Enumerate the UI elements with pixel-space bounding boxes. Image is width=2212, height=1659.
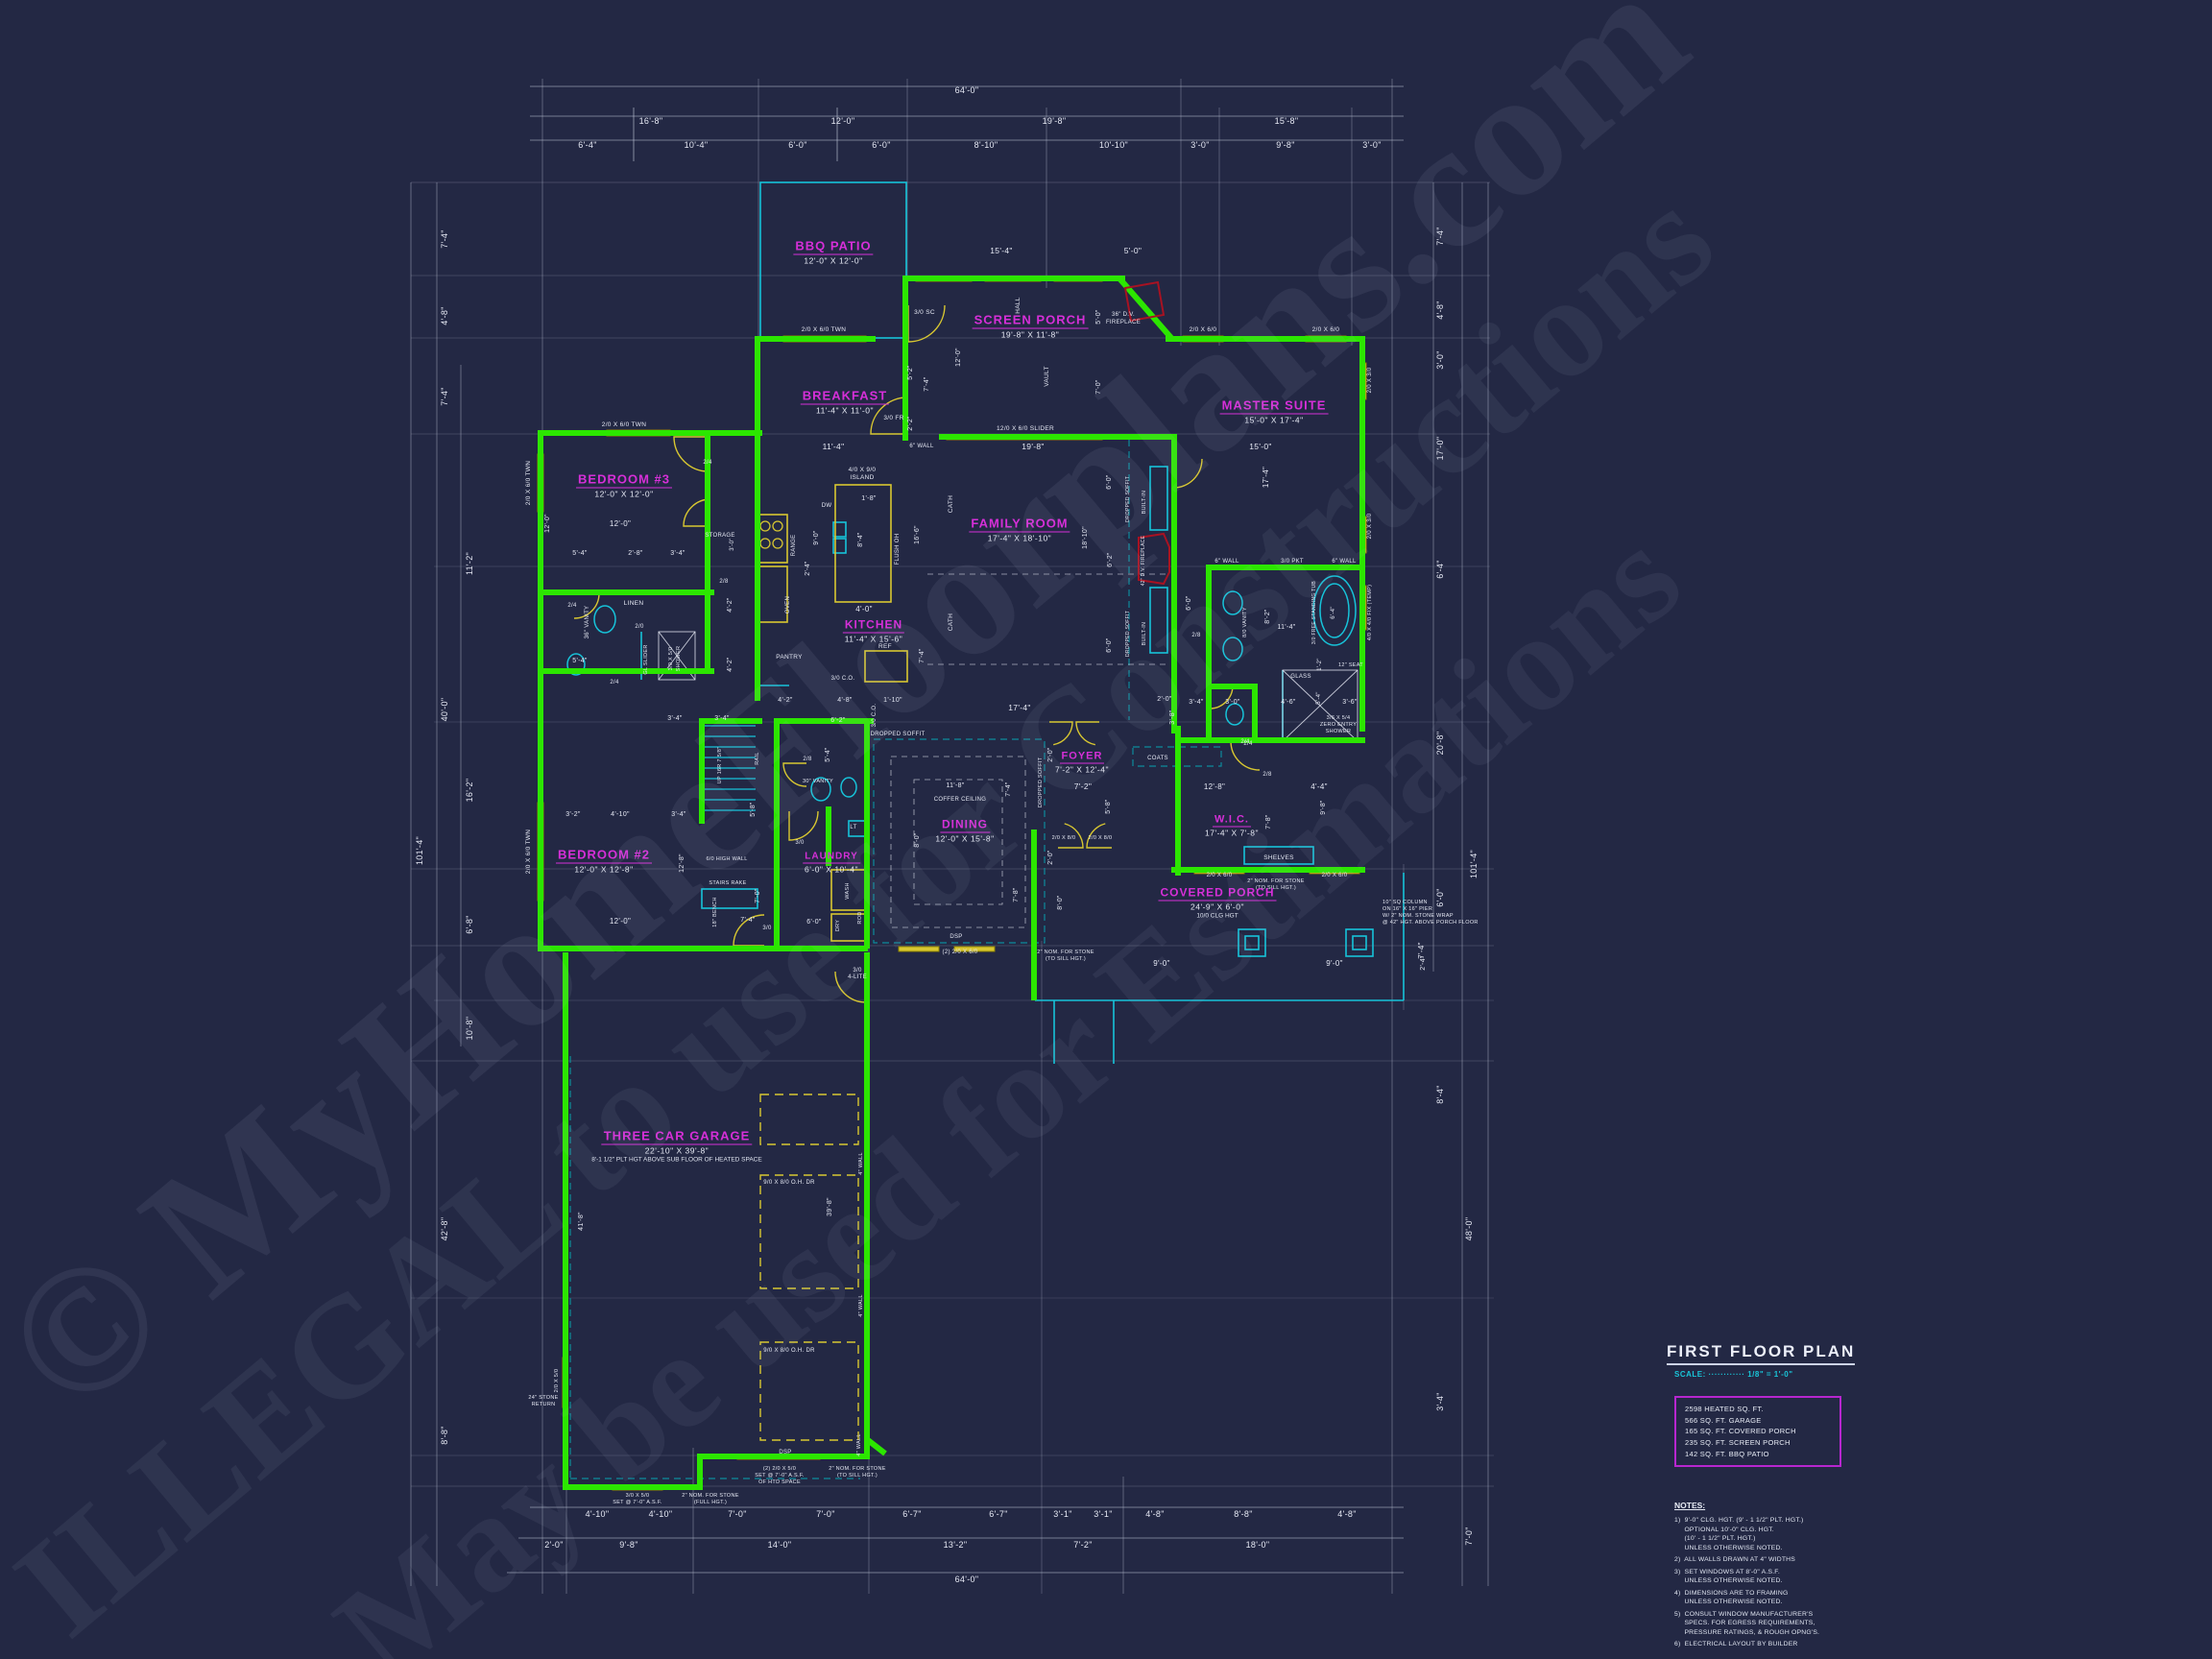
annotation-label: 11'-2" (465, 552, 474, 575)
casework-outline (757, 515, 787, 563)
annotation-label: 7'-0" (1464, 1527, 1474, 1545)
annotation-label: STORAGE (705, 533, 734, 539)
annotation-label: 12" SEAT (1338, 662, 1363, 668)
annotation-label: 6'-7" (989, 1509, 1007, 1519)
annotation-label: 101'-4" (1469, 850, 1479, 878)
annotation-label: 12'-0" (610, 519, 631, 528)
annotation-label: 2'-2" (907, 416, 914, 431)
annotation-label: 3'-4" (714, 715, 730, 722)
annotation-label: 12'-8" (679, 854, 685, 873)
plumbing-fixture (1223, 637, 1242, 661)
wall (705, 523, 710, 670)
annotation-label: 17'-4" (1262, 467, 1270, 488)
annotation-label: 2/0 X 5/0 (554, 1369, 560, 1393)
door-swing (789, 811, 818, 840)
annotation-label: 3'-4" (670, 550, 685, 557)
annotation-label: GL SLIDER (643, 644, 649, 674)
annotation-label: 8'-4" (1435, 1085, 1445, 1103)
overhead-door-track (760, 1342, 858, 1440)
note-item: 1) 9'-0" CLG. HGT. (9' - 1 1/2" PLT. HGT… (1674, 1516, 1868, 1552)
annotation-label: 3'-4" (671, 811, 686, 818)
annotation-label: 4/0 X 9/0 (849, 467, 877, 473)
annotation-label: 4'-2" (727, 657, 733, 672)
annotation-label: 12'-0" (544, 514, 551, 533)
annotation-label: LT (850, 825, 856, 830)
annotation-label: 6'-0" (1106, 474, 1113, 490)
annotation-label: 1'-10" (883, 697, 902, 704)
annotation-label: 7'-4" (1435, 227, 1445, 245)
annotation-label: 5'-8" (750, 802, 757, 817)
annotation-label: 2/0 X 8/0 (1089, 835, 1113, 841)
wall (1206, 565, 1365, 570)
annotation-label: FIREPLACE (1106, 320, 1141, 325)
area-summary-line: 566 SQ. FT. GARAGE (1685, 1415, 1831, 1427)
annotation-label: COATS (1147, 756, 1168, 761)
annotation-label: 20'-8" (1435, 732, 1445, 756)
door-swing (1076, 722, 1099, 745)
annotation-label: 8'-10" (974, 140, 998, 150)
annotation-label: 3'-0" (1225, 699, 1240, 706)
annotation-label: CATH (948, 613, 954, 631)
annotation-label: 4'-8" (440, 306, 449, 325)
range-burner (760, 521, 770, 531)
annotation-label: 5'-2" (907, 365, 914, 380)
annotation-label: 24" STONE (528, 1395, 558, 1401)
annotation-label: 2" NOM. FOR STONE (829, 1466, 886, 1472)
annotation-label: 2'-0" (1047, 747, 1054, 762)
wall-diagonal (868, 1440, 885, 1454)
wall (538, 946, 868, 951)
annotation-label: 8'-0" (1057, 895, 1064, 910)
plumbing-fixture (841, 778, 856, 797)
wall (563, 1484, 703, 1490)
annotation-label: 4'-8" (1337, 1509, 1356, 1519)
annotation-label: 9'-8" (619, 1540, 637, 1550)
annotation-label: 2/4 (567, 603, 577, 609)
annotation-label: RAIL (755, 752, 760, 764)
annotation-label: BUILT-IN (1142, 622, 1147, 646)
annotation-label: 16'-6" (914, 525, 921, 544)
plumbing-fixture (1223, 591, 1242, 614)
wall (1031, 829, 1037, 1000)
fixture-outline (1238, 929, 1265, 956)
annotation-label: RANGE (791, 535, 797, 557)
annotation-label: 2" NOM. FOR STONE (1037, 950, 1094, 955)
annotation-label: 6'-7" (902, 1509, 921, 1519)
annotation-label: 2/0 X 6/0 (1322, 873, 1348, 878)
annotation-label: 2/0 (635, 624, 644, 630)
annotation-label: GLASS (1290, 674, 1311, 680)
annotation-label: DW (822, 503, 832, 509)
annotation-label: 6'-0" (1186, 595, 1192, 611)
fixture-outline (1346, 929, 1373, 956)
annotation-label: 48'-0" (1464, 1217, 1474, 1241)
annotation-label: 10'-4" (685, 140, 709, 150)
wall (1175, 737, 1365, 743)
annotation-label: 5'-0" (1124, 246, 1142, 255)
annotation-label: 42" D.V. FIREPLACE (1141, 535, 1146, 586)
annotation-label: 2/8 (803, 757, 812, 762)
annotation-label: 7'-4" (440, 387, 449, 405)
overhead-door-track (760, 1094, 858, 1144)
annotation-label: 8'-0" (914, 832, 921, 848)
annotation-label: PANTRY (776, 654, 803, 661)
casework-outline (865, 651, 907, 682)
wall (538, 430, 762, 436)
annotation-label: REF (878, 643, 892, 650)
fixture-outline (702, 889, 757, 908)
wall (1359, 336, 1365, 732)
annotation-label: 2/8 (719, 579, 729, 585)
annotation-label: 15'-4" (990, 246, 1012, 255)
annotation-label: DROPPED SOFFIT (1125, 476, 1131, 522)
wall (864, 722, 870, 949)
annotation-label: 3/0 FREE STANDING TUB (1311, 581, 1317, 644)
annotation-label: 3'-8" (1169, 709, 1176, 725)
annotation-label: 18" BENCH (712, 897, 718, 927)
annotation-label: 12'-0" (955, 348, 962, 367)
area-summary-line: 235 SQ. FT. SCREEN PORCH (1685, 1437, 1831, 1449)
annotation-label: BUILT-IN (1142, 491, 1147, 515)
annotation-label: 101'-4" (415, 836, 424, 865)
annotation-label: 4" WALL (858, 1294, 864, 1316)
annotation-label: SHOWER (1326, 729, 1352, 734)
annotation-label: 7'-4" (740, 917, 756, 924)
wall (1206, 565, 1212, 743)
annotation-label: 6" WALL (1214, 559, 1239, 565)
wall (755, 430, 760, 701)
door-swing (1173, 459, 1202, 488)
annotation-label: COFFER CEILING (934, 797, 987, 803)
annotation-label: 8'-2" (1264, 609, 1271, 624)
wall (538, 589, 714, 595)
fixture-outline (760, 182, 906, 338)
annotation-label: DROPPED SOFFIT (871, 732, 926, 737)
annotation-label: 2'-8" (628, 550, 643, 557)
annotation-label: 4'-2" (778, 697, 793, 704)
annotation-label: (FULL HGT.) (694, 1500, 727, 1505)
annotation-label: 7'-8" (1265, 814, 1272, 829)
annotation-label: 3/0 (795, 840, 805, 846)
annotation-label: (2) 2/0 X 6/0 (943, 950, 978, 955)
annotation-label: 18'-10" (1082, 526, 1089, 549)
annotation-label: RETURN (532, 1402, 556, 1407)
annotation-label: LINEN (624, 600, 644, 607)
wall (1171, 434, 1177, 733)
wall (1210, 684, 1258, 689)
wall (538, 430, 543, 951)
annotation-label: 3/0 FR (883, 415, 903, 421)
wall (1166, 336, 1365, 342)
overhead-door-track (760, 1175, 858, 1288)
note-item: 3) SET WINDOWS AT 8'-0" A.S.F. UNLESS OT… (1674, 1568, 1868, 1586)
wall (774, 718, 874, 724)
notes-list: 1) 9'-0" CLG. HGT. (9' - 1 1/2" PLT. HGT… (1674, 1516, 1868, 1649)
annotation-label: @ 42" HGT. ABOVE PORCH FLOOR (1382, 920, 1479, 926)
plumbing-fixture (594, 606, 615, 633)
annotation-label: DSP (779, 1450, 791, 1455)
annotation-label: 10'-8" (465, 1017, 474, 1041)
window (899, 947, 939, 951)
annotation-label: 2/4 (703, 460, 712, 466)
annotation-label: 4-LITE (848, 974, 867, 980)
annotation-label: 5'-4" (1316, 691, 1322, 704)
annotation-label: 2/8 (1262, 772, 1272, 778)
annotation-label: ZERO ENTRY (1320, 722, 1357, 728)
annotation-label: 12/0 X 6/0 SLIDER (997, 425, 1054, 432)
annotation-label: 2'-0" (1157, 696, 1172, 703)
annotation-label: 2" NOM. FOR STONE (1247, 878, 1305, 884)
annotation-label: (TO SILL HGT.) (837, 1473, 878, 1479)
annotation-label: 4" WALL (858, 1152, 864, 1174)
annotation-label: 8/0 VANITY (1242, 607, 1248, 637)
annotation-label: 3'-4" (1189, 699, 1204, 706)
wall (1252, 684, 1258, 743)
annotation-label: 9'-8" (1320, 800, 1327, 815)
annotation-label: 3'-4" (1435, 1392, 1445, 1410)
annotation-label: 3/0 X 5/0 (626, 1493, 650, 1499)
annotation-label: 4'-8" (837, 697, 853, 704)
annotation-label: 12'-8" (1204, 782, 1225, 791)
annotation-label: 10" SQ COLUMN (1382, 900, 1428, 905)
wall (755, 336, 760, 436)
annotation-label: DROPPED SOFFIT (1038, 757, 1044, 807)
area-summary-line: 2598 HEATED SQ. FT. (1685, 1404, 1831, 1415)
annotation-label: 7'-8" (1013, 887, 1020, 902)
annotation-label: 6'-4" (1435, 560, 1445, 578)
annotation-label: DSP (950, 934, 962, 940)
annotation-label: W/ 2" NOM. STONE WRAP (1382, 913, 1454, 919)
wall (774, 718, 780, 950)
annotation-label: 42'-8" (440, 1217, 449, 1241)
annotation-label: 4'-10" (611, 811, 630, 818)
annotation-label: 5'-8" (1105, 799, 1112, 814)
wall (699, 718, 762, 724)
wall (864, 952, 870, 1459)
note-item: 6) ELECTRICAL LAYOUT BY BUILDER (1674, 1640, 1868, 1649)
casework-outline (757, 566, 787, 622)
annotation-label: 17'-4" (1008, 703, 1030, 712)
annotation-label: 7'-0" (728, 1509, 746, 1519)
annotation-label: 6'-2" (830, 717, 846, 724)
annotation-label: 3'-2" (565, 811, 581, 818)
annotation-label: 10'-10" (1099, 140, 1128, 150)
annotation-label: 3'-0" (1190, 140, 1209, 150)
annotation-label: 2/0 X 8/0 (1052, 835, 1076, 841)
annotation-label: 8'-8" (1234, 1509, 1252, 1519)
annotation-label: 6'-4" (578, 140, 596, 150)
annotation-label: ON 16" X 16" PIER (1382, 906, 1432, 912)
annotation-label: 16'-2" (465, 779, 474, 803)
door-swing (1049, 722, 1072, 745)
annotation-label: 9'-0" (813, 530, 820, 545)
note-item: 4) DIMENSIONS ARE TO FRAMING UNLESS OTHE… (1674, 1589, 1868, 1607)
annotation-label: 2/0 X 6/0 TWN (602, 421, 646, 428)
annotation-label: 13'-2" (944, 1540, 968, 1550)
annotation-label: 6'-8" (465, 915, 474, 933)
note-item: 2) ALL WALLS DRAWN AT 4" WIDTHS (1674, 1555, 1868, 1565)
annotation-label: DROPPED SOFFIT (1125, 611, 1131, 657)
annotation-label: SET @ 7'-0" A.S.F. (613, 1500, 662, 1505)
annotation-label: 6'-0" (806, 919, 822, 926)
soffit-dashed-outline (874, 739, 1045, 943)
annotation-label: WASH (845, 882, 851, 900)
annotation-label: 2/4 (1243, 741, 1253, 747)
fixture-outline (1150, 588, 1167, 653)
notes-section: NOTES: 1) 9'-0" CLG. HGT. (9' - 1 1/2" P… (1674, 1496, 1868, 1649)
annotation-label: 3'-1" (1053, 1509, 1071, 1519)
annotation-label: 2/0 X 3/0 (1367, 367, 1373, 393)
wall (538, 668, 714, 674)
annotation-label: 3'-0" (730, 538, 735, 550)
annotation-label: 2" NOM. FOR STONE (682, 1493, 739, 1499)
annotation-label: 6'-0" (1106, 637, 1113, 653)
annotation-label: 5'-0" (1095, 309, 1102, 325)
annotation-label: DRY (835, 920, 841, 931)
annotation-label: (2) 2/0 X 5/0 (763, 1466, 796, 1472)
annotation-label: 64'-0" (955, 85, 979, 95)
annotation-label: 1'-2" (1317, 658, 1323, 670)
annotation-label: 14'-0" (768, 1540, 792, 1550)
annotation-label: 9'-8" (1276, 140, 1294, 150)
annotation-label: 2'-0" (544, 1540, 563, 1550)
annotation-label: 4'-2" (727, 597, 733, 613)
annotation-label: 4'-8" (1435, 301, 1445, 319)
annotation-label: 4'-4" (1310, 782, 1327, 791)
wall (826, 806, 831, 866)
annotation-label: 9/0 X 8/0 O.H. DR (763, 1180, 815, 1186)
annotation-label: 36" VANITY (585, 606, 590, 639)
range-burner (773, 521, 782, 531)
annotation-label: 5'-4" (572, 550, 588, 557)
annotation-label: 40'-0" (440, 698, 449, 722)
annotation-label: 4" WALL (856, 1433, 862, 1455)
annotation-label: 6'-4" (1331, 606, 1336, 618)
annotation-label: 2'-4" (805, 561, 811, 576)
annotation-label: 6'-0" (1435, 888, 1445, 906)
annotation-label: 19'-8" (1043, 116, 1067, 126)
area-summary-line: 165 SQ. FT. COVERED PORCH (1685, 1426, 1831, 1437)
door-swing (674, 437, 709, 471)
annotation-label: HALL (1015, 297, 1022, 314)
annotation-label: UP 16R 7 5/8" (717, 747, 723, 784)
annotation-label: 30" VANITY (803, 779, 833, 784)
annotation-label: ISLAND (850, 474, 874, 481)
annotation-label: 7'-2" (1073, 1540, 1092, 1550)
annotation-label: 3/0 PKT (1281, 559, 1304, 565)
annotation-label: 3/0 X 5/0 (668, 647, 674, 671)
annotation-label: 4/0 X 4/0 FIX (TEMP) (1367, 585, 1373, 641)
annotation-label: 4'-0" (855, 605, 872, 613)
annotation-label: 15'-0" (1249, 442, 1271, 451)
annotation-label: 7'-4" (919, 648, 926, 663)
annotation-label: SHELVES (1263, 854, 1294, 861)
note-item: 5) CONSULT WINDOW MANUFACTURER'S SPECS. … (1674, 1610, 1868, 1638)
annotation-label: 4'-10" (586, 1509, 610, 1519)
notes-heading: NOTES: (1674, 1501, 1705, 1510)
annotation-label: 2/0 X 6/0 (1312, 326, 1340, 333)
annotation-label: 3'-6" (1342, 699, 1358, 706)
annotation-label: 7'-2" (1074, 781, 1092, 791)
wall (1175, 726, 1181, 876)
annotation-label: 7'-0" (1095, 379, 1102, 395)
annotation-label: 6'-0" (872, 140, 890, 150)
annotation-label: 3/0 C.O. (831, 676, 855, 682)
title-block: FIRST FLOOR PLAN SCALE: ············ 1/8… (1667, 1342, 1868, 1649)
annotation-label: 3/0 SC (914, 309, 935, 316)
annotation-label: 2'-4" (1420, 955, 1427, 971)
wall (757, 336, 876, 342)
annotation-label: 36" D.V. (1112, 312, 1135, 318)
annotation-label: 64'-0" (955, 1575, 979, 1584)
wall (563, 952, 568, 1490)
page: { "canvas":{"width":2304,"height":1728,"… (0, 0, 2212, 1659)
annotation-label: 2/0 X 3/0 (1367, 513, 1373, 539)
annotation-label: OF HTD SPACE (758, 1479, 801, 1485)
annotation-label: 2'-0" (1047, 850, 1054, 865)
annotation-label: 2/4 (610, 680, 619, 685)
annotation-label: SHOWER (676, 646, 682, 672)
annotation-label: 7'-0" (816, 1509, 834, 1519)
annotation-label: 3/6 X 5/4 (1327, 715, 1351, 721)
annotation-label: 4'-6" (1281, 699, 1296, 706)
annotation-label: 6'-0" (788, 140, 806, 150)
annotation-label: 7'-4" (1005, 781, 1012, 797)
annotation-label: 3'-0" (1435, 350, 1445, 369)
fixture-outline (1353, 936, 1366, 950)
annotation-label: FLUSH OH (895, 534, 901, 565)
annotation-label: 2/8 (1191, 633, 1201, 638)
annotation-label: 3'-1" (1094, 1509, 1112, 1519)
annotation-label: 19'-8" (1022, 442, 1044, 451)
annotation-label: 6" WALL (909, 444, 934, 449)
annotation-label: 2/0 X 6/0 TWN (525, 461, 532, 505)
annotation-label: 12'-0" (610, 917, 631, 926)
annotation-label: 17'-0" (1435, 437, 1445, 461)
annotation-label: 2/0 X 6/0 (1207, 873, 1233, 878)
drawing-scale: SCALE: ············ 1/8" = 1'-0" (1674, 1370, 1868, 1379)
annotation-label: 11'-4" (1277, 624, 1295, 631)
annotation-label: 12'-0" (831, 116, 855, 126)
fixture-outline (1245, 936, 1259, 950)
annotation-label: SET @ 7'-0" A.S.F. (755, 1473, 805, 1479)
annotation-label: 2/0 X 6/0 TWN (525, 829, 532, 874)
annotation-label: 39'-8" (827, 1197, 833, 1216)
annotation-label: 7'-0" (755, 888, 761, 903)
annotation-label: 5'-4" (572, 658, 588, 664)
annotation-label: 6'-2" (1107, 552, 1114, 567)
annotation-label: 8'-8" (440, 1426, 449, 1444)
annotation-label: 16'-8" (639, 116, 663, 126)
annotation-label: 11'-4" (823, 442, 845, 451)
annotation-label: 15'-8" (1275, 116, 1299, 126)
annotation-label: 4'-8" (1145, 1509, 1164, 1519)
drawing-title: FIRST FLOOR PLAN (1667, 1342, 1855, 1365)
blueprint-sheet: 64'-0"16'-8"12'-0"19'-8"15'-8"6'-4"10'-4… (0, 0, 2212, 1659)
area-summary-box: 2598 HEATED SQ. FT.566 SQ. FT. GARAGE165… (1674, 1396, 1841, 1467)
annotation-label: 41'-8" (578, 1212, 585, 1231)
annotation-label: 2/0 X 6/0 TWN (802, 326, 846, 333)
annotation-label: 7'-4" (924, 376, 930, 392)
annotation-label: 5'-4" (825, 747, 831, 762)
fixture-outline (1150, 467, 1167, 530)
annotation-label: 8'-4" (857, 532, 864, 547)
annotation-label: 6/0 HIGH WALL (706, 856, 747, 862)
area-summary-line: 142 SQ. FT. BBQ PATIO (1685, 1449, 1831, 1460)
annotation-label: 1'-8" (861, 495, 877, 502)
annotation-label: 6" WALL (1332, 559, 1357, 565)
annotation-label: 2/0 X 6/0 (1190, 326, 1217, 333)
